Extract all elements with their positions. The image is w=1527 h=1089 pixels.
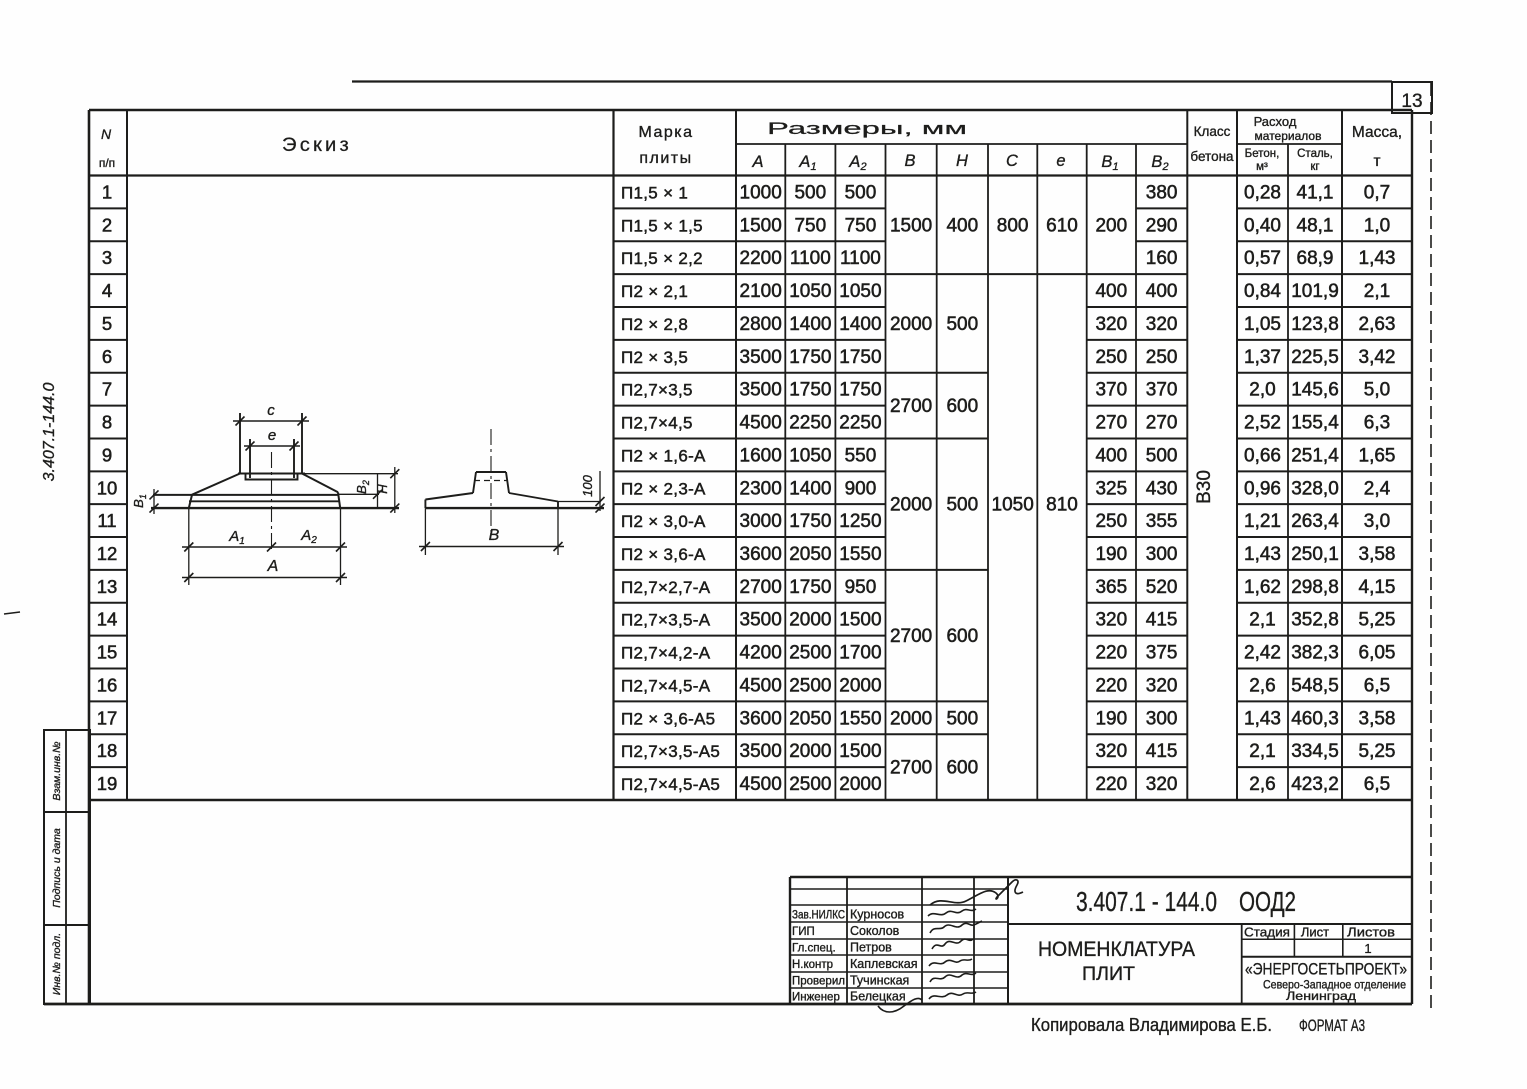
svg-text:101,9: 101,9 (1291, 281, 1339, 302)
svg-text:П2 × 3,6-А: П2 × 3,6-А (621, 545, 706, 564)
svg-text:Взам.инв.№: Взам.инв.№ (51, 741, 63, 800)
svg-text:0,66: 0,66 (1244, 445, 1281, 466)
svg-text:п/п: п/п (99, 156, 115, 170)
svg-text:423,2: 423,2 (1291, 774, 1339, 795)
svg-text:500: 500 (794, 182, 826, 203)
svg-text:Ленинград: Ленинград (1286, 989, 1356, 1003)
svg-text:Лист: Лист (1301, 925, 1329, 940)
svg-text:2700: 2700 (890, 396, 932, 417)
svg-text:3.407.1 - 144.0: 3.407.1 - 144.0 (1076, 886, 1217, 917)
svg-text:1: 1 (1364, 941, 1371, 956)
svg-text:Петров: Петров (850, 941, 892, 955)
svg-text:4500: 4500 (740, 413, 782, 434)
svg-text:Марка: Марка (638, 124, 693, 141)
svg-text:П1,5 × 1,5: П1,5 × 1,5 (621, 216, 703, 235)
svg-text:9: 9 (102, 444, 112, 465)
svg-text:В: В (904, 152, 915, 170)
svg-text:300: 300 (1146, 544, 1178, 565)
svg-text:3.407.1-144.0: 3.407.1-144.0 (41, 383, 58, 482)
svg-text:3500: 3500 (740, 380, 782, 401)
svg-text:2,4: 2,4 (1364, 478, 1391, 499)
svg-text:2100: 2100 (740, 281, 782, 302)
svg-text:3,42: 3,42 (1359, 347, 1396, 368)
svg-text:1400: 1400 (839, 314, 881, 335)
svg-text:365: 365 (1095, 577, 1127, 598)
svg-text:2000: 2000 (839, 774, 881, 795)
svg-text:0,28: 0,28 (1244, 182, 1281, 203)
svg-text:2,52: 2,52 (1244, 413, 1281, 434)
svg-text:1750: 1750 (789, 577, 831, 598)
svg-text:2,6: 2,6 (1249, 774, 1275, 795)
svg-text:600: 600 (946, 396, 978, 417)
svg-text:415: 415 (1146, 741, 1178, 762)
svg-text:320: 320 (1095, 610, 1127, 631)
svg-text:382,3: 382,3 (1291, 643, 1339, 664)
svg-text:1750: 1750 (789, 511, 831, 532)
svg-text:П2 × 2,3-А: П2 × 2,3-А (621, 479, 706, 498)
svg-text:370: 370 (1095, 380, 1127, 401)
svg-text:3,58: 3,58 (1359, 708, 1396, 729)
svg-text:190: 190 (1095, 544, 1127, 565)
svg-text:298,8: 298,8 (1291, 577, 1339, 598)
svg-text:500: 500 (1146, 445, 1178, 466)
svg-text:Сталь,: Сталь, (1297, 148, 1333, 160)
svg-text:1,21: 1,21 (1244, 511, 1281, 532)
svg-text:Бетон,: Бетон, (1245, 148, 1280, 160)
svg-text:5,25: 5,25 (1359, 610, 1396, 631)
svg-text:3000: 3000 (740, 511, 782, 532)
svg-text:е: е (268, 427, 276, 444)
svg-text:Белецкая: Белецкая (850, 990, 906, 1004)
svg-text:П2 × 1,6-А: П2 × 1,6-А (621, 446, 706, 465)
svg-text:Каплевская: Каплевская (850, 957, 917, 971)
svg-text:320: 320 (1146, 774, 1178, 795)
svg-text:материалов: материалов (1255, 129, 1322, 143)
svg-text:2050: 2050 (789, 544, 831, 565)
svg-text:5: 5 (102, 313, 112, 334)
svg-text:270: 270 (1095, 413, 1127, 434)
svg-text:290: 290 (1146, 215, 1178, 236)
svg-text:1750: 1750 (839, 380, 881, 401)
svg-text:2: 2 (102, 214, 112, 235)
svg-text:430: 430 (1146, 478, 1178, 499)
svg-text:2,42: 2,42 (1244, 643, 1281, 664)
svg-text:П2 × 3,6-А5: П2 × 3,6-А5 (621, 709, 715, 728)
svg-text:1: 1 (102, 181, 112, 202)
svg-text:1750: 1750 (789, 380, 831, 401)
svg-text:Инв.№ подл.: Инв.№ подл. (51, 933, 63, 995)
svg-text:48,1: 48,1 (1297, 215, 1334, 236)
svg-text:520: 520 (1146, 577, 1178, 598)
svg-text:100: 100 (580, 474, 595, 496)
svg-text:1550: 1550 (839, 544, 881, 565)
svg-text:415: 415 (1146, 610, 1178, 631)
svg-text:300: 300 (1146, 708, 1178, 729)
svg-text:17: 17 (97, 707, 118, 728)
svg-text:1000: 1000 (740, 182, 782, 203)
svg-text:225,5: 225,5 (1291, 347, 1339, 368)
svg-text:320: 320 (1095, 741, 1127, 762)
svg-text:1400: 1400 (789, 314, 831, 335)
svg-text:4: 4 (102, 280, 112, 301)
svg-text:250: 250 (1146, 347, 1178, 368)
svg-text:П2,7×2,7-А: П2,7×2,7-А (621, 578, 711, 597)
svg-text:1,65: 1,65 (1359, 445, 1396, 466)
svg-text:950: 950 (845, 577, 877, 598)
svg-text:2,1: 2,1 (1249, 610, 1275, 631)
svg-text:400: 400 (1146, 281, 1178, 302)
svg-text:200: 200 (1095, 215, 1127, 236)
svg-text:1100: 1100 (790, 248, 831, 269)
svg-text:2000: 2000 (890, 708, 932, 729)
svg-text:3: 3 (102, 247, 112, 268)
svg-text:Подпись и дата: Подпись и дата (51, 828, 63, 908)
svg-text:270: 270 (1146, 413, 1178, 434)
svg-text:Размеры, мм: Размеры, мм (767, 120, 967, 138)
svg-text:0,40: 0,40 (1244, 215, 1281, 236)
svg-text:220: 220 (1095, 643, 1127, 664)
svg-text:1,05: 1,05 (1244, 314, 1281, 335)
svg-text:0,57: 0,57 (1244, 248, 1281, 269)
svg-text:6: 6 (102, 346, 112, 367)
svg-text:900: 900 (845, 478, 877, 499)
svg-text:10: 10 (97, 477, 118, 498)
svg-text:1500: 1500 (839, 741, 881, 762)
svg-text:12: 12 (97, 543, 118, 564)
svg-text:5,0: 5,0 (1364, 380, 1390, 401)
svg-text:Н: Н (375, 484, 390, 494)
svg-text:2000: 2000 (890, 495, 932, 516)
svg-text:6,5: 6,5 (1364, 774, 1390, 795)
svg-text:810: 810 (1046, 495, 1078, 516)
svg-text:13: 13 (97, 576, 118, 597)
svg-text:П2 × 3,0-А: П2 × 3,0-А (621, 512, 706, 531)
svg-text:П2,7×4,5: П2,7×4,5 (621, 414, 693, 433)
svg-text:е: е (1056, 152, 1065, 170)
svg-text:4,15: 4,15 (1359, 577, 1396, 598)
svg-text:3,58: 3,58 (1359, 544, 1396, 565)
svg-text:1,37: 1,37 (1244, 347, 1281, 368)
svg-text:6,3: 6,3 (1364, 413, 1390, 434)
svg-text:370: 370 (1146, 380, 1178, 401)
svg-text:18: 18 (97, 740, 118, 761)
svg-text:П1,5 × 2,2: П1,5 × 2,2 (621, 249, 703, 268)
svg-text:1250: 1250 (839, 511, 881, 532)
svg-text:380: 380 (1146, 182, 1178, 203)
svg-text:550: 550 (845, 445, 877, 466)
svg-text:250,1: 250,1 (1291, 544, 1339, 565)
svg-text:19: 19 (97, 773, 118, 794)
svg-text:П2,7×3,5-А5: П2,7×3,5-А5 (621, 742, 720, 761)
svg-text:41,1: 41,1 (1297, 182, 1334, 203)
svg-text:334,5: 334,5 (1291, 741, 1339, 762)
svg-text:П2 × 3,5: П2 × 3,5 (621, 348, 688, 367)
svg-text:2700: 2700 (890, 758, 932, 779)
svg-text:68,9: 68,9 (1297, 248, 1334, 269)
svg-text:Стадия: Стадия (1244, 925, 1290, 940)
svg-text:ГИП: ГИП (792, 926, 815, 938)
svg-text:0,7: 0,7 (1364, 182, 1390, 203)
svg-text:1550: 1550 (839, 708, 881, 729)
svg-text:250: 250 (1095, 347, 1127, 368)
svg-text:160: 160 (1146, 248, 1178, 269)
svg-text:Проверил: Проверил (792, 976, 845, 988)
svg-text:250: 250 (1095, 511, 1127, 532)
svg-text:П2,7×3,5-А: П2,7×3,5-А (621, 611, 711, 630)
svg-text:Н.контр: Н.контр (792, 959, 833, 971)
svg-text:м³: м³ (1256, 161, 1268, 173)
svg-text:Тучинская: Тучинская (850, 974, 909, 988)
svg-text:2800: 2800 (740, 314, 782, 335)
svg-text:220: 220 (1095, 675, 1127, 696)
svg-text:т: т (1373, 153, 1380, 170)
svg-text:0,96: 0,96 (1244, 478, 1281, 499)
svg-text:Листов: Листов (1347, 925, 1395, 940)
svg-text:14: 14 (97, 609, 118, 630)
svg-text:НОМЕНКЛАТУРА: НОМЕНКЛАТУРА (1038, 938, 1195, 961)
svg-text:7: 7 (102, 379, 112, 400)
svg-text:П1,5 × 1: П1,5 × 1 (621, 183, 688, 202)
svg-text:2000: 2000 (839, 675, 881, 696)
svg-text:2,6: 2,6 (1249, 675, 1275, 696)
svg-text:320: 320 (1095, 314, 1127, 335)
svg-text:Н: Н (956, 152, 968, 170)
svg-text:3500: 3500 (740, 347, 782, 368)
svg-text:1500: 1500 (740, 215, 782, 236)
svg-text:1500: 1500 (839, 610, 881, 631)
svg-text:А: А (267, 558, 279, 575)
svg-text:1750: 1750 (839, 347, 881, 368)
svg-text:ООД2: ООД2 (1239, 886, 1296, 917)
svg-text:П2,7×4,5-А: П2,7×4,5-А (621, 676, 711, 695)
svg-text:3500: 3500 (740, 741, 782, 762)
svg-text:2300: 2300 (740, 478, 782, 499)
svg-text:2500: 2500 (789, 643, 831, 664)
svg-text:3600: 3600 (740, 708, 782, 729)
svg-text:П2,7×4,5-А5: П2,7×4,5-А5 (621, 775, 720, 794)
svg-text:Инженер: Инженер (792, 992, 840, 1004)
svg-text:2250: 2250 (789, 413, 831, 434)
svg-text:Расход: Расход (1254, 114, 1297, 129)
svg-text:320: 320 (1146, 314, 1178, 335)
svg-text:1050: 1050 (992, 495, 1034, 516)
svg-text:1,43: 1,43 (1359, 248, 1396, 269)
svg-text:6,5: 6,5 (1364, 675, 1390, 696)
svg-text:1,62: 1,62 (1244, 577, 1281, 598)
svg-text:6,05: 6,05 (1359, 643, 1396, 664)
svg-text:16: 16 (97, 674, 118, 695)
svg-text:1,43: 1,43 (1244, 544, 1281, 565)
svg-text:3,0: 3,0 (1364, 511, 1390, 532)
svg-text:П2 × 2,1: П2 × 2,1 (621, 282, 688, 301)
svg-text:2700: 2700 (890, 626, 932, 647)
svg-text:«ЭНЕРГОСЕТЬПРОЕКТ»: «ЭНЕРГОСЕТЬПРОЕКТ» (1245, 960, 1407, 979)
svg-text:4200: 4200 (740, 643, 782, 664)
svg-text:4500: 4500 (740, 774, 782, 795)
svg-text:155,4: 155,4 (1291, 413, 1339, 434)
svg-text:2,63: 2,63 (1359, 314, 1396, 335)
svg-text:610: 610 (1046, 215, 1078, 236)
svg-text:П2 × 2,8: П2 × 2,8 (621, 315, 688, 334)
svg-text:11: 11 (97, 510, 116, 531)
svg-text:1700: 1700 (839, 643, 881, 664)
svg-text:2700: 2700 (740, 577, 782, 598)
svg-text:А: А (751, 153, 763, 171)
svg-text:1400: 1400 (789, 478, 831, 499)
svg-text:0,84: 0,84 (1244, 281, 1281, 302)
svg-text:2000: 2000 (890, 314, 932, 335)
svg-text:Копировала Владимирова Е.Б.: Копировала Владимирова Е.Б. (1031, 1015, 1272, 1035)
svg-text:328,0: 328,0 (1291, 478, 1339, 499)
svg-text:600: 600 (946, 758, 978, 779)
svg-text:400: 400 (946, 215, 978, 236)
svg-text:3600: 3600 (740, 544, 782, 565)
svg-text:2500: 2500 (789, 675, 831, 696)
svg-text:8: 8 (102, 412, 112, 433)
svg-text:1100: 1100 (840, 248, 881, 269)
svg-text:Эскиз: Эскиз (282, 135, 352, 156)
svg-text:2000: 2000 (789, 741, 831, 762)
svg-text:400: 400 (1095, 281, 1127, 302)
svg-text:1050: 1050 (789, 445, 831, 466)
svg-text:251,4: 251,4 (1291, 445, 1339, 466)
svg-text:2,0: 2,0 (1249, 380, 1275, 401)
svg-text:400: 400 (1095, 445, 1127, 466)
svg-text:145,6: 145,6 (1291, 380, 1339, 401)
svg-text:Соколов: Соколов (850, 924, 900, 938)
svg-text:15: 15 (97, 642, 118, 663)
svg-text:1050: 1050 (839, 281, 881, 302)
svg-text:В: В (489, 527, 500, 544)
svg-text:Класс: Класс (1194, 124, 1231, 139)
svg-text:Масса,: Масса, (1352, 124, 1402, 141)
svg-text:кг: кг (1310, 161, 1319, 173)
svg-text:263,4: 263,4 (1291, 511, 1339, 532)
svg-text:1600: 1600 (740, 445, 782, 466)
svg-text:352,8: 352,8 (1291, 610, 1339, 631)
svg-text:600: 600 (946, 626, 978, 647)
svg-text:2,1: 2,1 (1364, 281, 1390, 302)
svg-text:5,25: 5,25 (1359, 741, 1396, 762)
svg-text:2200: 2200 (740, 248, 782, 269)
svg-text:220: 220 (1095, 774, 1127, 795)
svg-text:В30: В30 (1194, 470, 1215, 504)
svg-text:1050: 1050 (789, 281, 831, 302)
svg-text:3500: 3500 (740, 610, 782, 631)
svg-text:С: С (1006, 152, 1018, 170)
svg-text:500: 500 (946, 314, 978, 335)
svg-text:1,43: 1,43 (1244, 708, 1281, 729)
svg-text:1,0: 1,0 (1364, 215, 1390, 236)
svg-text:Гл.спец.: Гл.спец. (792, 943, 836, 955)
svg-text:ПЛИТ: ПЛИТ (1082, 964, 1135, 985)
svg-text:2000: 2000 (789, 610, 831, 631)
svg-text:1750: 1750 (789, 347, 831, 368)
svg-text:1500: 1500 (890, 215, 932, 236)
svg-text:Курносов: Курносов (850, 908, 905, 922)
svg-text:500: 500 (845, 182, 877, 203)
svg-text:750: 750 (845, 215, 877, 236)
svg-text:2500: 2500 (789, 774, 831, 795)
svg-text:355: 355 (1146, 511, 1178, 532)
svg-text:500: 500 (946, 495, 978, 516)
svg-text:500: 500 (946, 708, 978, 729)
svg-text:2250: 2250 (839, 413, 881, 434)
svg-text:460,3: 460,3 (1291, 708, 1339, 729)
svg-text:320: 320 (1146, 675, 1178, 696)
svg-text:ФОРМАТ А3: ФОРМАТ А3 (1299, 1016, 1365, 1035)
svg-text:750: 750 (794, 215, 826, 236)
svg-text:2,1: 2,1 (1249, 741, 1275, 762)
svg-text:N: N (101, 126, 112, 142)
svg-text:плиты: плиты (639, 150, 692, 167)
svg-text:Зав.НИЛКС: Зав.НИЛКС (792, 910, 845, 922)
svg-text:4500: 4500 (740, 675, 782, 696)
svg-text:123,8: 123,8 (1291, 314, 1339, 335)
svg-text:2050: 2050 (789, 708, 831, 729)
svg-text:П2,7×4,2-А: П2,7×4,2-А (621, 644, 711, 663)
svg-text:бетона: бетона (1190, 149, 1234, 164)
svg-text:325: 325 (1095, 478, 1127, 499)
svg-text:П2,7×3,5: П2,7×3,5 (621, 381, 693, 400)
svg-text:с: с (267, 402, 275, 419)
svg-text:548,5: 548,5 (1291, 675, 1339, 696)
svg-text:800: 800 (997, 215, 1029, 236)
svg-text:190: 190 (1095, 708, 1127, 729)
svg-text:375: 375 (1146, 643, 1178, 664)
